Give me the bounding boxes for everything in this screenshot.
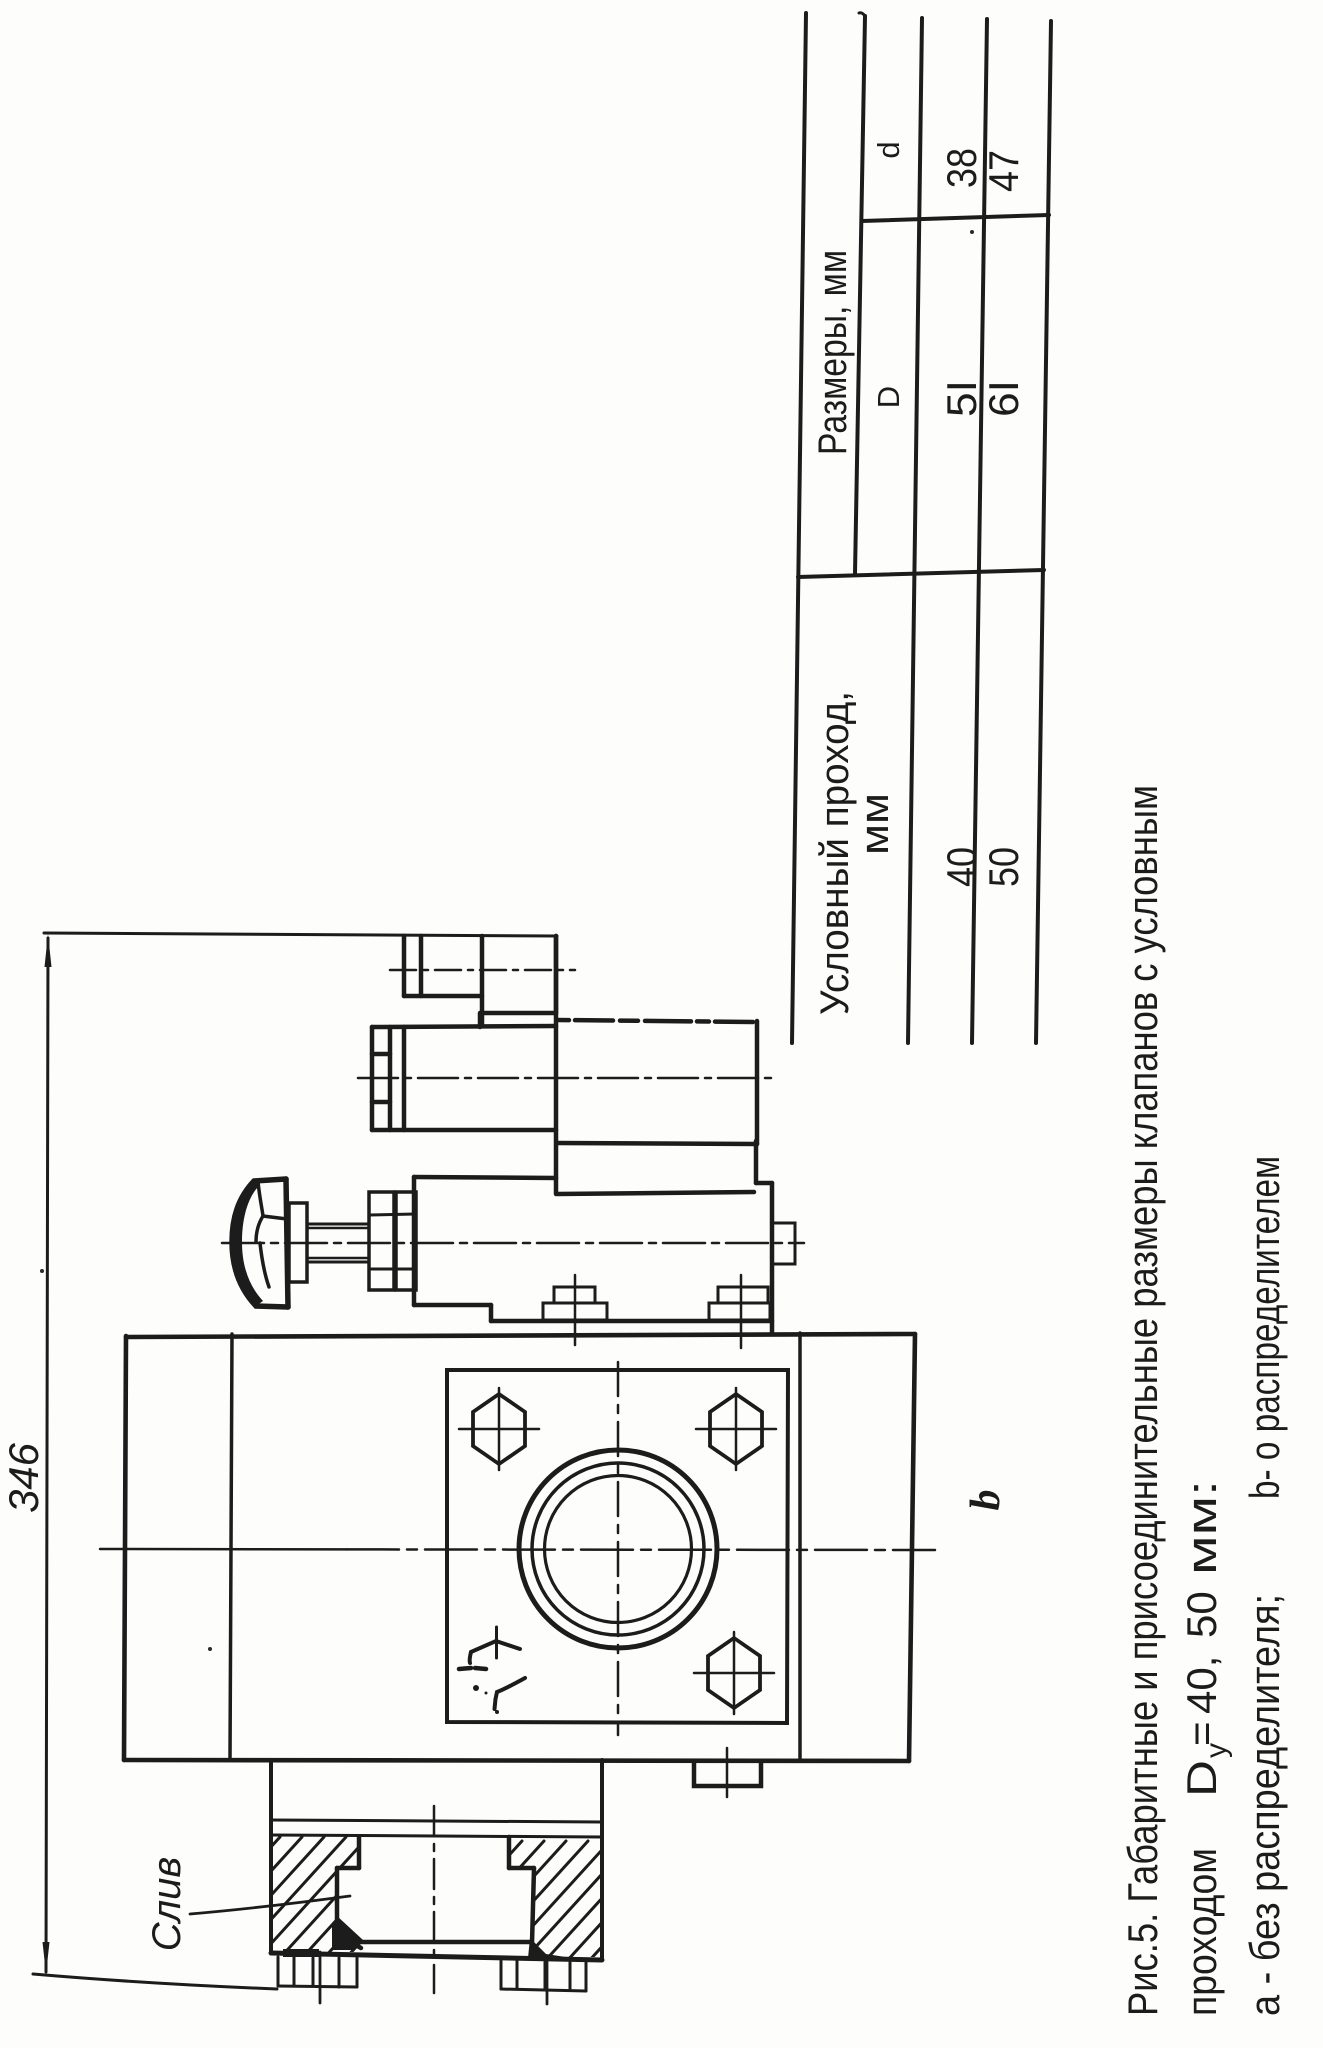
svg-text:47: 47: [980, 150, 1027, 192]
svg-text:5I: 5I: [938, 380, 985, 417]
svg-text:40: 40: [938, 847, 985, 887]
svg-text:40,: 40,: [1178, 1656, 1225, 1714]
svg-text:D: D: [871, 386, 906, 408]
svg-text:мм: мм: [853, 793, 897, 855]
svg-text:Размеры, мм: Размеры, мм: [811, 250, 855, 455]
svg-text:проходом: проходом: [1178, 1848, 1225, 2016]
svg-text:d: d: [871, 141, 906, 158]
svg-text:50: 50: [980, 847, 1027, 887]
svg-text:6I: 6I: [980, 380, 1027, 417]
svg-text:мм:: мм:: [1178, 1480, 1225, 1575]
svg-text:Условный проход,: Условный проход,: [813, 691, 857, 1015]
svg-text:346: 346: [0, 1442, 47, 1513]
svg-text:Рис.5. Габаритные и присоедини: Рис.5. Габаритные и присоединительные ра…: [1119, 785, 1166, 2016]
svg-text:а - без распределителя;: а - без распределителя;: [1241, 1594, 1288, 2016]
svg-text:D: D: [1178, 1760, 1225, 1797]
svg-text:=: =: [1178, 1721, 1225, 1746]
svg-text:38: 38: [938, 148, 985, 188]
svg-text:b: b: [963, 1490, 1009, 1511]
svg-text:Слив: Слив: [145, 1857, 189, 1952]
svg-text:b- о распределителем: b- о распределителем: [1241, 1156, 1288, 1499]
svg-text:50: 50: [1178, 1591, 1225, 1638]
